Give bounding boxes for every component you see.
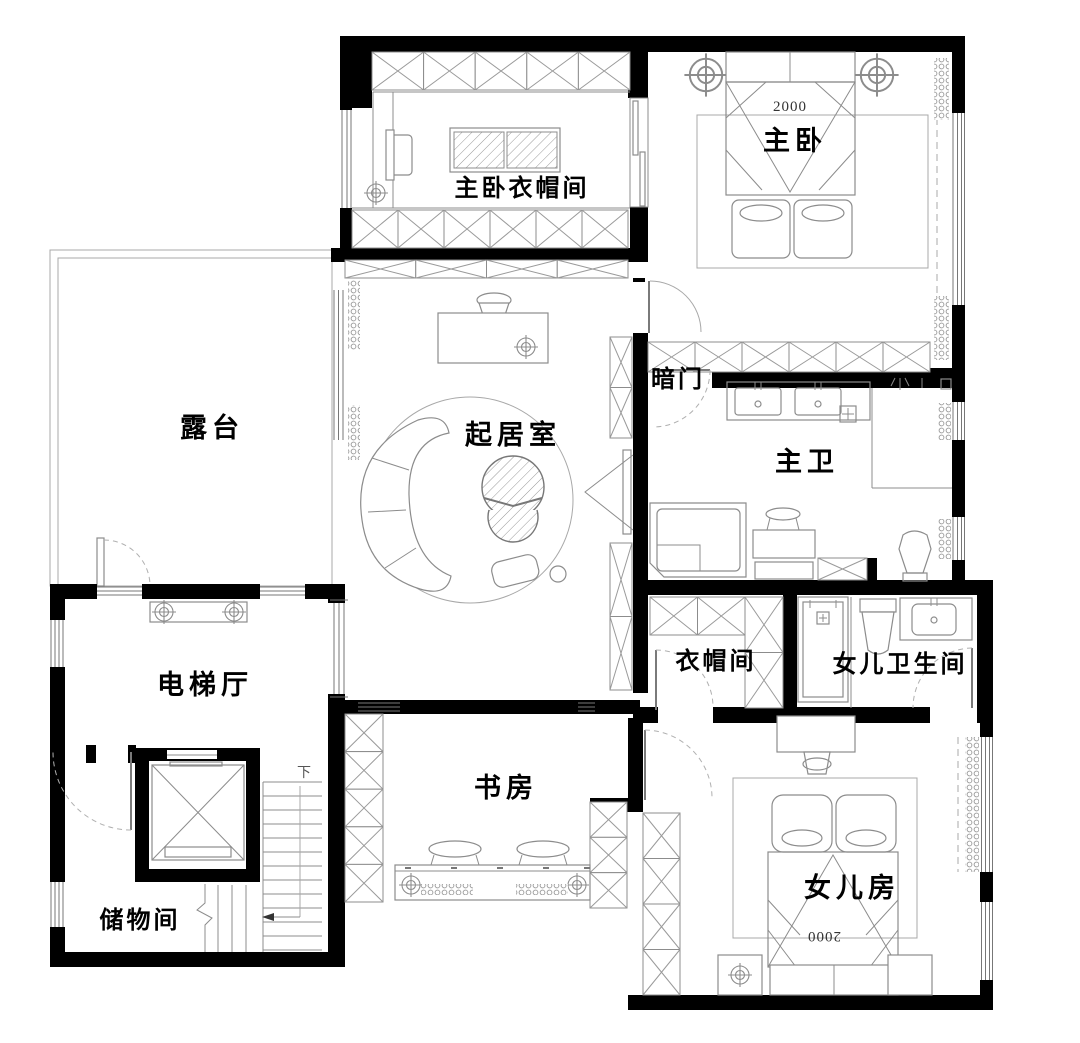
wardrobe-master-closet-top (372, 52, 630, 90)
toilet-master (899, 531, 931, 581)
label-storage: 储物间 (100, 906, 181, 934)
window-daughter-room-2 (982, 902, 993, 980)
label-daughter-room: 女儿房 (804, 872, 900, 903)
label-closet: 衣帽间 (676, 647, 757, 675)
study-stool-1 (429, 841, 481, 865)
curtain-daughter-room (965, 737, 979, 872)
cabinet-living-east-1 (610, 337, 632, 438)
cabinet-master-bath (818, 558, 867, 580)
stairs-break-line (197, 884, 212, 952)
window-hall-north-1 (97, 587, 142, 595)
curtain-master-bedroom-top (934, 58, 949, 120)
room-daughter (645, 716, 932, 995)
terrace-door-arc (104, 540, 150, 585)
label-elevator-hall: 电梯厅 (157, 670, 253, 700)
dim-daughter-bed: 2000 (807, 928, 841, 944)
wardrobe-master-closet-bottom (352, 210, 628, 248)
shower-tub (798, 597, 848, 702)
cabinet-living-east-2 (610, 543, 632, 690)
elevator-shaft (135, 748, 260, 882)
window-master-closet-west (342, 110, 351, 208)
label-master-bath: 主卫 (775, 447, 839, 477)
window-daughter-room-1 (982, 737, 993, 872)
label-daughter-bath: 女儿卫生间 (833, 650, 968, 678)
living-desk (438, 313, 548, 363)
label-master-closet: 主卧衣帽间 (455, 174, 590, 202)
curtain-living-1 (348, 280, 360, 350)
window-hall-north-2 (260, 587, 305, 595)
dim-master-bed: 2000 (773, 99, 807, 115)
bookshelf-study-right (590, 802, 627, 908)
study-stool-2 (517, 841, 569, 865)
daughter-chair (804, 752, 830, 774)
curtain-living-2 (348, 405, 360, 460)
door-panel-symbol (585, 455, 633, 530)
window-master-bedroom-east (953, 113, 965, 305)
pouf (490, 553, 541, 589)
wardrobe-daughter-room (643, 813, 680, 995)
window-master-bath-1 (953, 402, 965, 440)
round-table (482, 456, 544, 518)
daughter-desk (777, 716, 855, 752)
bed-bench (732, 200, 852, 258)
terrace-door-leaf (97, 538, 104, 586)
label-study: 书房 (474, 773, 538, 803)
window-living-west (334, 290, 343, 440)
window-hall-west-1 (51, 620, 63, 667)
window-living-hall (334, 603, 344, 694)
bath-vanity-stool (753, 508, 815, 579)
label-master-bedroom: 主卧 (763, 126, 827, 156)
bathtub (650, 503, 746, 577)
stairs-arrow (262, 913, 274, 921)
bookshelf-study-left (345, 714, 383, 902)
room-master-bedroom (633, 52, 928, 333)
room-study (395, 841, 590, 900)
cabinet-living-top (345, 260, 628, 278)
daughter-nightstand-right (888, 955, 932, 995)
toilet-daughter (860, 599, 896, 654)
room-elevator-hall (53, 600, 322, 952)
curved-sofa (361, 418, 451, 591)
window-master-bath-2 (953, 517, 965, 560)
curtain-master-bedroom-bottom (934, 296, 949, 360)
label-terrace: 露台 (180, 412, 244, 443)
bedroom-door-arc (650, 281, 701, 332)
window-hall-west-2 (51, 882, 63, 927)
pocket-door-master-bedroom (630, 98, 648, 207)
label-stairs-down: 下 (297, 766, 311, 781)
wardrobe-closet-top (650, 597, 745, 635)
floor-plan-canvas: 主卧衣帽间 主卧 2000 露台 起居室 暗门 主卫 电梯厅 衣帽间 女儿卫生间… (0, 0, 1080, 1043)
label-hidden-door: 暗门 (651, 365, 705, 393)
nightstand-lamp-left (684, 53, 727, 96)
floor-plan-drawing: 主卧衣帽间 主卧 2000 露台 起居室 暗门 主卫 电梯厅 衣帽间 女儿卫生间… (0, 0, 1080, 1043)
label-living: 起居室 (465, 419, 561, 450)
daughter-door-arc (645, 730, 712, 798)
nightstand-lamp-right (855, 53, 898, 96)
sink-daughter (900, 598, 972, 640)
